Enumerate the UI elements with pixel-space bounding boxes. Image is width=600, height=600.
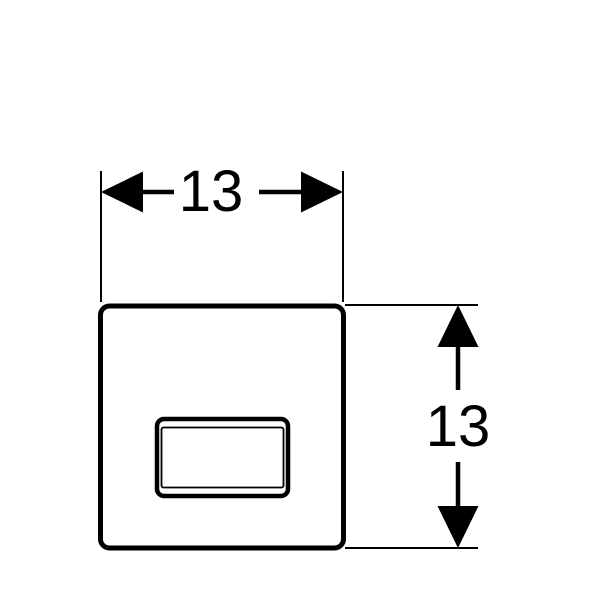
technical-drawing xyxy=(0,0,600,600)
arrowhead-right-icon xyxy=(301,172,343,213)
height-dimension-label: 13 xyxy=(424,398,493,456)
arrowhead-up-icon xyxy=(438,305,479,347)
button-outline xyxy=(157,419,288,496)
arrowhead-down-icon xyxy=(438,506,479,548)
drawing-canvas: 13 13 xyxy=(0,0,600,600)
arrowhead-left-icon xyxy=(101,172,143,213)
plate-front-view xyxy=(101,306,344,548)
width-dimension-label: 13 xyxy=(177,163,246,221)
